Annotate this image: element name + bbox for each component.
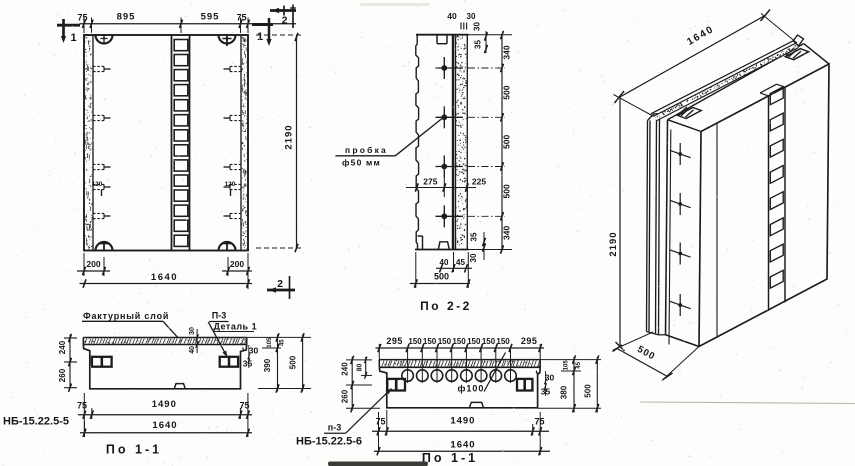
- svg-text:105: 105: [267, 337, 273, 348]
- svg-text:45: 45: [576, 361, 582, 368]
- svg-text:1: 1: [70, 32, 76, 44]
- svg-text:1640: 1640: [450, 440, 475, 451]
- svg-text:275: 275: [423, 177, 437, 187]
- svg-text:1490: 1490: [450, 416, 475, 427]
- svg-text:75: 75: [375, 417, 385, 427]
- svg-text:45: 45: [280, 339, 286, 346]
- svg-text:200: 200: [86, 259, 100, 269]
- svg-text:По 1-1: По 1-1: [106, 443, 162, 457]
- svg-text:150: 150: [408, 337, 422, 346]
- svg-text:75: 75: [534, 417, 544, 427]
- svg-text:35: 35: [541, 387, 551, 397]
- svg-text:75: 75: [77, 13, 87, 23]
- svg-text:340: 340: [502, 226, 512, 240]
- svg-text:500: 500: [584, 384, 593, 398]
- svg-text:35: 35: [474, 40, 483, 49]
- svg-text:75: 75: [236, 13, 246, 23]
- svg-text:1640: 1640: [151, 272, 178, 283]
- svg-text:150: 150: [467, 337, 481, 346]
- svg-text:895: 895: [117, 12, 136, 23]
- svg-text:500: 500: [289, 355, 298, 369]
- svg-text:30: 30: [473, 22, 482, 31]
- svg-text:500: 500: [434, 272, 449, 282]
- svg-text:500: 500: [502, 85, 512, 99]
- svg-text:1640: 1640: [152, 420, 177, 431]
- svg-text:2190: 2190: [608, 231, 619, 256]
- svg-text:Деталь 1: Деталь 1: [214, 322, 258, 332]
- svg-text:1490: 1490: [152, 399, 177, 410]
- svg-text:150: 150: [482, 337, 496, 346]
- svg-text:260: 260: [58, 368, 67, 382]
- svg-text:пробка: пробка: [345, 145, 388, 155]
- svg-text:ф100: ф100: [458, 384, 485, 394]
- svg-text:45: 45: [456, 258, 465, 267]
- svg-text:ф50 мм: ф50 мм: [342, 158, 381, 168]
- svg-text:40: 40: [440, 258, 449, 267]
- svg-text:295: 295: [386, 336, 403, 346]
- svg-text:По 2-2: По 2-2: [420, 299, 472, 313]
- svg-text:2: 2: [282, 15, 288, 27]
- svg-text:240: 240: [341, 362, 350, 376]
- svg-text:150: 150: [438, 337, 452, 346]
- svg-text:295: 295: [521, 336, 538, 346]
- svg-text:80: 80: [357, 364, 364, 372]
- svg-text:30: 30: [189, 327, 196, 335]
- svg-text:105: 105: [564, 360, 570, 371]
- svg-text:30: 30: [467, 12, 476, 21]
- svg-text:595: 595: [201, 12, 220, 23]
- svg-text:75: 75: [77, 401, 87, 411]
- svg-text:390: 390: [263, 358, 272, 372]
- svg-text:40: 40: [447, 11, 457, 21]
- svg-text:120: 120: [92, 181, 103, 188]
- svg-text:1: 1: [257, 31, 263, 43]
- svg-text:500: 500: [502, 135, 512, 149]
- svg-text:200: 200: [230, 259, 244, 269]
- svg-text:120: 120: [225, 181, 236, 188]
- svg-text:П-3: П-3: [212, 311, 226, 321]
- svg-text:150: 150: [452, 337, 466, 346]
- svg-text:2: 2: [277, 278, 283, 290]
- svg-text:2190: 2190: [284, 124, 295, 149]
- svg-text:340: 340: [502, 45, 512, 59]
- svg-text:Фактурный слой: Фактурный слой: [83, 311, 169, 321]
- svg-text:НБ-15.22.5-5: НБ-15.22.5-5: [3, 416, 69, 428]
- svg-text:35: 35: [243, 359, 253, 369]
- svg-text:240: 240: [58, 340, 67, 354]
- svg-text:260: 260: [341, 389, 350, 403]
- svg-text:150: 150: [423, 337, 437, 346]
- svg-text:30: 30: [469, 253, 478, 262]
- svg-text:п-3: п-3: [328, 423, 341, 433]
- svg-text:500: 500: [502, 184, 512, 198]
- svg-text:35: 35: [470, 232, 479, 241]
- svg-text:380: 380: [560, 385, 569, 399]
- svg-text:По 1-1: По 1-1: [422, 451, 478, 465]
- svg-text:НБ-15.22.5-6: НБ-15.22.5-6: [296, 436, 362, 448]
- svg-text:225: 225: [472, 177, 486, 187]
- svg-text:150: 150: [496, 337, 510, 346]
